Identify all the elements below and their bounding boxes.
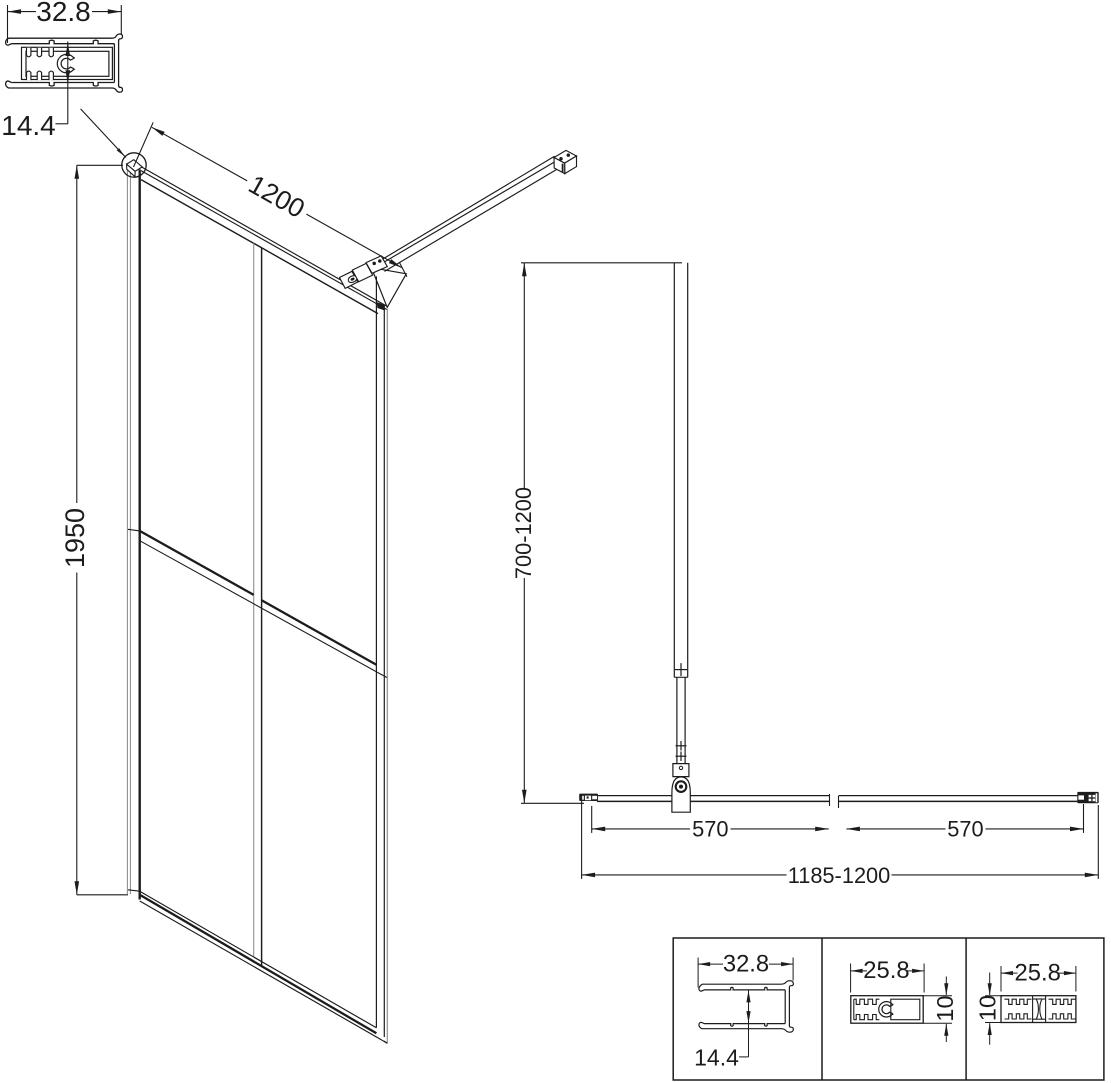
svg-text:1950: 1950 [60,508,90,568]
svg-text:14.4: 14.4 [694,1045,739,1071]
svg-text:10: 10 [932,995,958,1021]
svg-text:1185-1200: 1185-1200 [788,863,891,888]
svg-text:25.8: 25.8 [863,957,909,984]
svg-text:570: 570 [692,817,728,842]
svg-text:32.8: 32.8 [36,0,91,27]
svg-text:32.8: 32.8 [723,950,769,977]
svg-text:10: 10 [974,995,1000,1021]
svg-text:25.8: 25.8 [1015,959,1061,986]
svg-text:700-1200: 700-1200 [511,487,536,579]
svg-text:14.4: 14.4 [1,110,56,141]
svg-text:570: 570 [947,817,983,842]
